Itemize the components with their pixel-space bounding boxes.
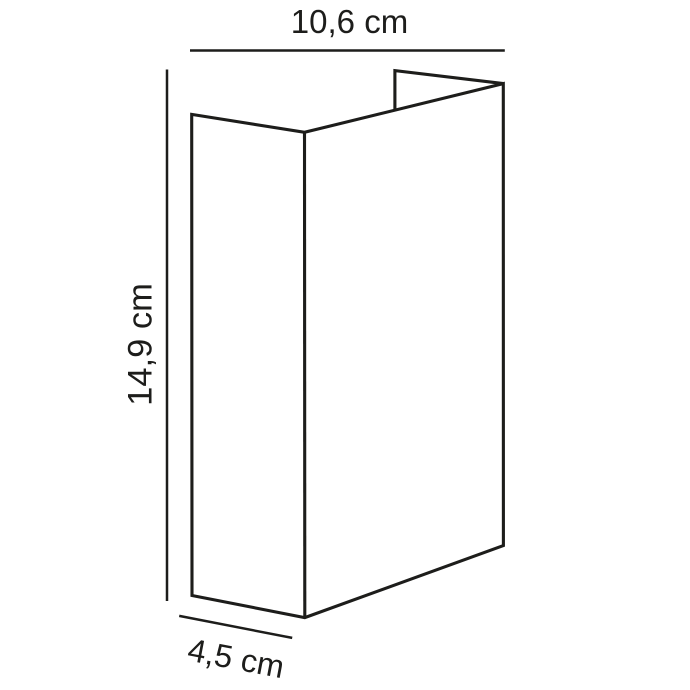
svg-text:14,9 cm: 14,9 cm: [122, 283, 160, 406]
svg-text:4,5 cm: 4,5 cm: [185, 632, 287, 685]
svg-text:10,6 cm: 10,6 cm: [291, 3, 408, 40]
